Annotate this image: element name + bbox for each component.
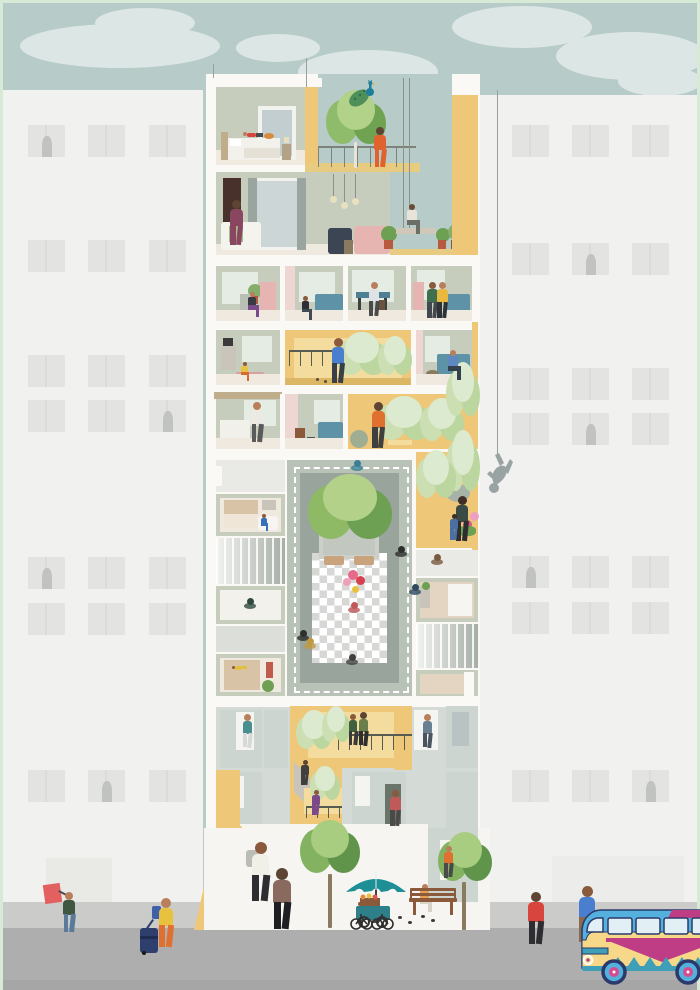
left-building-window xyxy=(149,557,186,589)
mullion-b1 xyxy=(280,330,285,386)
penthouse-reader xyxy=(243,130,262,140)
left-window-occupant-silhouette xyxy=(42,136,52,157)
left-window-occupant-silhouette xyxy=(42,568,52,589)
left-building-window xyxy=(88,125,125,157)
left-building-window xyxy=(88,400,125,432)
right-building-window xyxy=(632,602,669,634)
left-building-window xyxy=(88,240,125,272)
balloon-2 xyxy=(356,576,365,585)
right-building-window xyxy=(512,243,549,275)
plan-room-r3-plant xyxy=(422,582,430,590)
plan-stairs-l3 xyxy=(216,538,285,584)
left-window-occupant-silhouette xyxy=(102,781,112,802)
room-b2-pink-wall xyxy=(416,330,423,380)
street-man-red xyxy=(524,892,548,944)
plaza-woman xyxy=(268,868,296,928)
scene-architectural-section xyxy=(0,0,700,990)
frame-top xyxy=(0,0,700,3)
right-building-window xyxy=(512,770,549,802)
mullion-c1 xyxy=(280,394,285,450)
sofa-man-b2 xyxy=(446,350,464,380)
slab-1 xyxy=(206,255,478,266)
nightstand-lamp xyxy=(284,137,289,143)
lattice-window-5 xyxy=(452,712,469,746)
right-building-window xyxy=(572,125,609,157)
lamp-bulb-1 xyxy=(330,196,337,203)
swing-woman xyxy=(405,204,423,234)
living-window-glass xyxy=(255,181,303,247)
right-building-window xyxy=(632,243,669,275)
right-storefront xyxy=(552,856,684,904)
desk-worker-a1 xyxy=(246,292,262,318)
hippie-bus xyxy=(572,902,700,986)
courtyard-duo-b xyxy=(304,638,316,653)
courtyard-tree xyxy=(308,474,392,550)
lattice-window-4 xyxy=(355,776,370,806)
window-man-teal xyxy=(240,714,255,747)
courtyard-bench-2 xyxy=(354,556,374,565)
mullion-a1 xyxy=(280,266,285,322)
washing-rope xyxy=(497,90,498,456)
roof-terrace-woman xyxy=(371,127,389,167)
suitcase-boy xyxy=(155,898,177,946)
penthouse-yellow-wall xyxy=(305,87,318,172)
yellow-wall-upper xyxy=(452,95,478,262)
right-building-window xyxy=(572,556,609,588)
courtyard-child xyxy=(348,602,360,617)
right-building-window xyxy=(512,368,549,400)
left-building-window xyxy=(88,603,125,635)
boule-2 xyxy=(324,380,327,383)
mullion-a2 xyxy=(343,266,348,322)
balloon-4 xyxy=(352,586,359,593)
yoga-kid-b1 xyxy=(240,362,253,382)
left-building-window xyxy=(88,355,125,387)
room-b1-window xyxy=(242,336,272,362)
plan-bath-l1-door xyxy=(216,466,222,486)
right-building-window xyxy=(512,413,549,445)
balloon-3 xyxy=(343,578,351,586)
left-building-window xyxy=(28,400,65,432)
mullion-c2 xyxy=(343,394,348,450)
left-building-window xyxy=(28,355,65,387)
peacock xyxy=(348,80,380,110)
flag-man xyxy=(60,892,78,932)
antenna-1 xyxy=(213,64,214,78)
plan-room-l2-sheet xyxy=(224,514,258,528)
plan-room-l6-plant xyxy=(262,680,274,692)
right-building-window xyxy=(632,368,669,400)
left-building-window xyxy=(28,603,65,635)
right-building-window xyxy=(632,125,669,157)
kids-bikes xyxy=(350,906,394,930)
mullion-a3 xyxy=(406,266,411,322)
lamp-cord-1 xyxy=(333,174,334,198)
suitcase-wheel xyxy=(142,951,146,955)
window-man-top xyxy=(420,714,435,747)
lamp-bulb-3 xyxy=(352,198,359,205)
left-window-occupant-silhouette xyxy=(163,411,173,432)
right-building-window xyxy=(632,413,669,445)
balcony-woman xyxy=(310,790,322,815)
right-building-window xyxy=(572,770,609,802)
courtyard-bottom-figure xyxy=(346,654,358,669)
bed-pillow xyxy=(230,139,241,146)
sky-gap-right xyxy=(416,74,452,172)
bath-figure-r2 xyxy=(431,554,443,569)
yellow-ground-col xyxy=(216,770,240,828)
plan-room-r5-door xyxy=(464,672,474,696)
room-c1-awning xyxy=(214,392,282,399)
garden-r1-tree xyxy=(416,450,456,506)
left-building-window xyxy=(149,770,186,802)
left-building-window xyxy=(28,240,65,272)
nightstand xyxy=(282,144,291,160)
gardener-child xyxy=(448,514,460,540)
courtyard-kid-top xyxy=(351,460,363,475)
desk-kid-l2 xyxy=(260,514,272,532)
laptop-sitter-a2 xyxy=(300,296,315,320)
cat-on-bed xyxy=(264,133,274,139)
play-terrace-tree-2 xyxy=(378,336,412,382)
left-building-window xyxy=(28,770,65,802)
swing-cable-1 xyxy=(403,78,404,230)
standing-worker-a3 xyxy=(366,282,382,316)
frame-left xyxy=(0,0,3,990)
park-bench xyxy=(408,884,458,918)
lattice-panel-3 xyxy=(264,710,288,768)
plan-bath-l1 xyxy=(216,460,285,492)
plan-room-l6-rug xyxy=(266,662,273,678)
right-window-occupant-silhouette xyxy=(526,567,536,588)
kitchen-person-c1 xyxy=(248,402,266,442)
lamp-cord-3 xyxy=(355,174,356,200)
slab-2 xyxy=(206,321,478,330)
room-a2-pink-wall xyxy=(285,266,295,316)
right-building-window xyxy=(572,602,609,634)
plan-bath-r2 xyxy=(416,550,478,576)
room-b1-monitor xyxy=(223,338,233,346)
bed-headboard xyxy=(221,132,228,160)
lamp-cord-2 xyxy=(344,174,345,204)
right-window-occupant-silhouette xyxy=(646,781,656,802)
terrace-plant-pot xyxy=(384,240,393,249)
cloud-2 xyxy=(95,8,195,38)
courtyard-bench-1 xyxy=(324,556,344,565)
roof-slab xyxy=(206,78,322,87)
playing-man-terrace xyxy=(328,338,348,382)
left-building-window xyxy=(88,557,125,589)
lamp-bulb-2 xyxy=(341,202,348,209)
bed-blanket xyxy=(244,148,280,158)
right-building-window xyxy=(512,125,549,157)
courtyard-walker-2 xyxy=(409,584,421,599)
garden-terrace-bush xyxy=(350,430,368,448)
mullion-a4 xyxy=(472,266,478,322)
right-window-occupant-silhouette xyxy=(586,424,596,445)
right-window-occupant-silhouette xyxy=(586,254,596,275)
pigeon-4 xyxy=(431,919,435,922)
curtain-2 xyxy=(297,178,306,250)
plan-room-l2-desk xyxy=(262,500,276,510)
boule-1 xyxy=(316,378,319,381)
pigeon-2 xyxy=(408,921,412,924)
pot-1 xyxy=(438,240,446,249)
left-building-window xyxy=(149,355,186,387)
doorway-woman xyxy=(226,200,247,245)
rope-climber xyxy=(482,446,514,502)
plan-stairs-r4 xyxy=(416,624,478,668)
antenna-2 xyxy=(306,58,307,87)
plan-room-r3-bed xyxy=(448,584,472,616)
right-building-window xyxy=(632,556,669,588)
left-building-window xyxy=(149,603,186,635)
stair-walker xyxy=(299,760,311,785)
doorway-man-red xyxy=(387,790,404,826)
sleeper-l6 xyxy=(232,664,247,672)
cloud-7 xyxy=(618,66,700,96)
figure-l4 xyxy=(244,598,256,613)
left-building-window xyxy=(149,125,186,157)
right-building-window xyxy=(572,368,609,400)
lattice-panel-6 xyxy=(446,772,478,830)
right-building-window xyxy=(512,602,549,634)
left-building-window xyxy=(149,240,186,272)
balcony-man-b xyxy=(356,712,371,745)
courtyard-walker-1 xyxy=(395,546,407,561)
lattice-window-man xyxy=(441,846,456,878)
plan-bath-l5 xyxy=(216,626,285,652)
couple-a4-woman xyxy=(434,282,451,318)
room-b1-desk xyxy=(221,342,236,370)
cloud-3 xyxy=(236,34,320,62)
orange-shirt-man xyxy=(368,402,389,448)
room-c2-window xyxy=(314,400,340,424)
side-table xyxy=(344,240,353,254)
